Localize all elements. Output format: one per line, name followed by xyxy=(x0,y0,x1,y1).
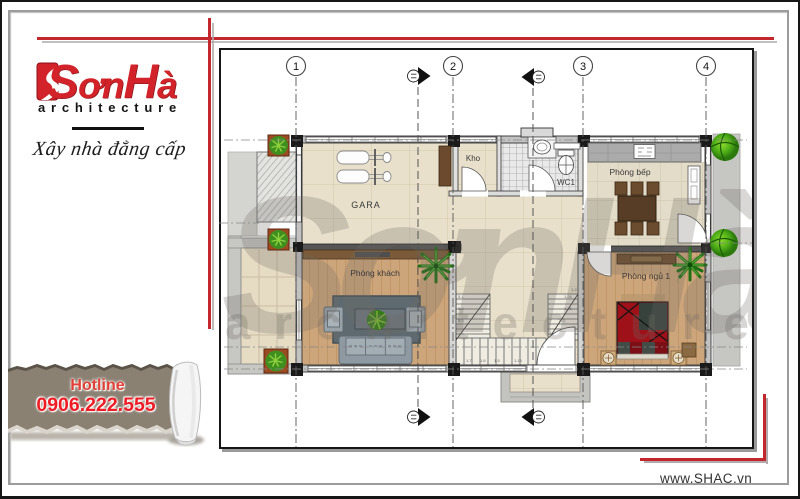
svg-text:Phòng bếp: Phòng bếp xyxy=(609,167,650,177)
svg-text:GARA: GARA xyxy=(351,200,381,210)
svg-text:5.1: 5.1 xyxy=(458,294,464,299)
svg-text:1.7: 1.7 xyxy=(466,358,472,363)
svg-text:4: 4 xyxy=(703,61,709,73)
svg-text:Kho: Kho xyxy=(466,154,481,163)
svg-text:WC1: WC1 xyxy=(557,178,575,187)
svg-text:1.6: 1.6 xyxy=(480,358,486,363)
svg-text:1.26: 1.26 xyxy=(564,294,573,299)
svg-text:1.23: 1.23 xyxy=(571,287,580,292)
svg-text:5.3: 5.3 xyxy=(458,318,464,323)
svg-text:1: 1 xyxy=(293,61,299,73)
svg-text:2: 2 xyxy=(450,61,456,73)
svg-text:1.15: 1.15 xyxy=(514,358,523,363)
svg-text:1.15: 1.15 xyxy=(564,306,573,311)
svg-text:1.5: 1.5 xyxy=(494,358,500,363)
svg-text:Phòng khách: Phòng khách xyxy=(350,268,400,278)
svg-text:5.2: 5.2 xyxy=(458,306,464,311)
svg-text:Phòng ngủ 1: Phòng ngủ 1 xyxy=(622,271,670,281)
svg-text:3: 3 xyxy=(580,61,586,73)
